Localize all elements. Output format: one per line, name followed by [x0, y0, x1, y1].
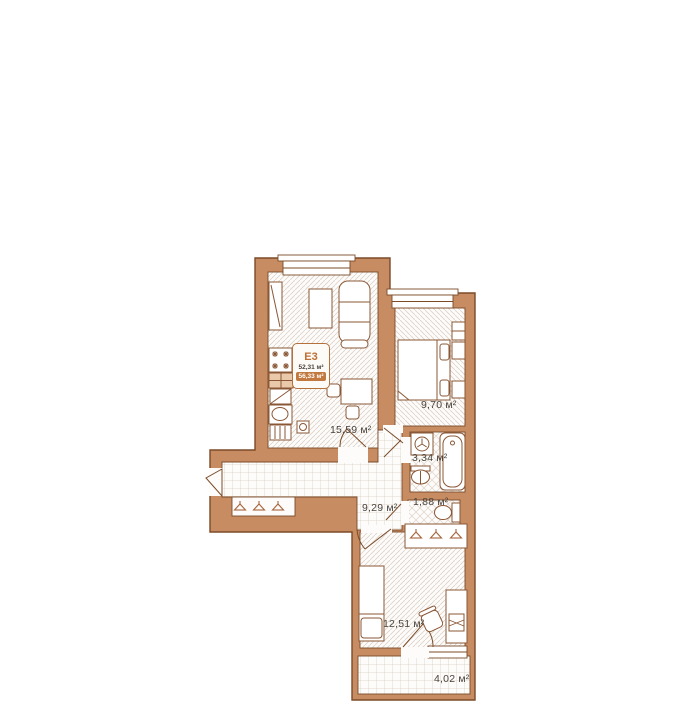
- window-balcony: [428, 646, 467, 658]
- hallway-wardrobe-niche: [232, 497, 295, 516]
- window-bedroom: [387, 289, 458, 308]
- window-living: [278, 255, 355, 275]
- area-label-balcony: 4,02 м²: [434, 673, 469, 685]
- single-bed: [359, 566, 384, 641]
- tv-unit: [269, 282, 282, 330]
- kitchen-cabinet: [270, 389, 291, 404]
- area-label-bedroom: 9,70 м²: [421, 399, 456, 411]
- door-opening-bathroom: [401, 437, 411, 463]
- area-label-kitchen-living: 15,59 м²: [330, 424, 372, 436]
- floor-plan-drawing: [0, 0, 679, 710]
- unit-area-with-balcony: 56,33 м²: [296, 372, 325, 381]
- area-label-bedroom2: 12,51 м²: [383, 618, 425, 630]
- dish-rack: [270, 425, 291, 440]
- area-label-hallway: 9,29 м²: [362, 502, 397, 514]
- nightstand: [452, 342, 465, 359]
- oven-icon: [269, 373, 293, 388]
- dining-chair: [346, 406, 359, 419]
- area-label-toilet: 1,88 м²: [413, 496, 448, 508]
- kitchen-hob-icon: [269, 348, 292, 372]
- area-label-bathroom: 3,34 м²: [412, 452, 447, 464]
- unit-badge: E3 52,31 м² 56,33 м²: [292, 343, 330, 389]
- unit-area-main: 52,31 м²: [298, 364, 323, 371]
- bedroom2-wardrobe: [405, 524, 467, 548]
- dining-table: [341, 379, 372, 404]
- desk: [446, 590, 467, 643]
- floor-plan: 15,59 м² 9,70 м² 3,34 м² 1,88 м² 9,29 м²…: [0, 0, 679, 710]
- coffee-table: [309, 289, 332, 328]
- kitchen-sink-icon: [269, 405, 292, 424]
- nightstand: [452, 381, 465, 398]
- shelf-unit: [452, 322, 465, 340]
- sofa: [339, 281, 370, 348]
- double-bed: [398, 340, 450, 400]
- unit-type-label: E3: [304, 352, 317, 363]
- door-opening-living: [338, 447, 368, 463]
- bathroom-sink-icon: [411, 466, 430, 484]
- door-opening-balcony: [401, 647, 429, 658]
- door-opening-toilet: [401, 501, 409, 525]
- stool-icon: [297, 421, 309, 433]
